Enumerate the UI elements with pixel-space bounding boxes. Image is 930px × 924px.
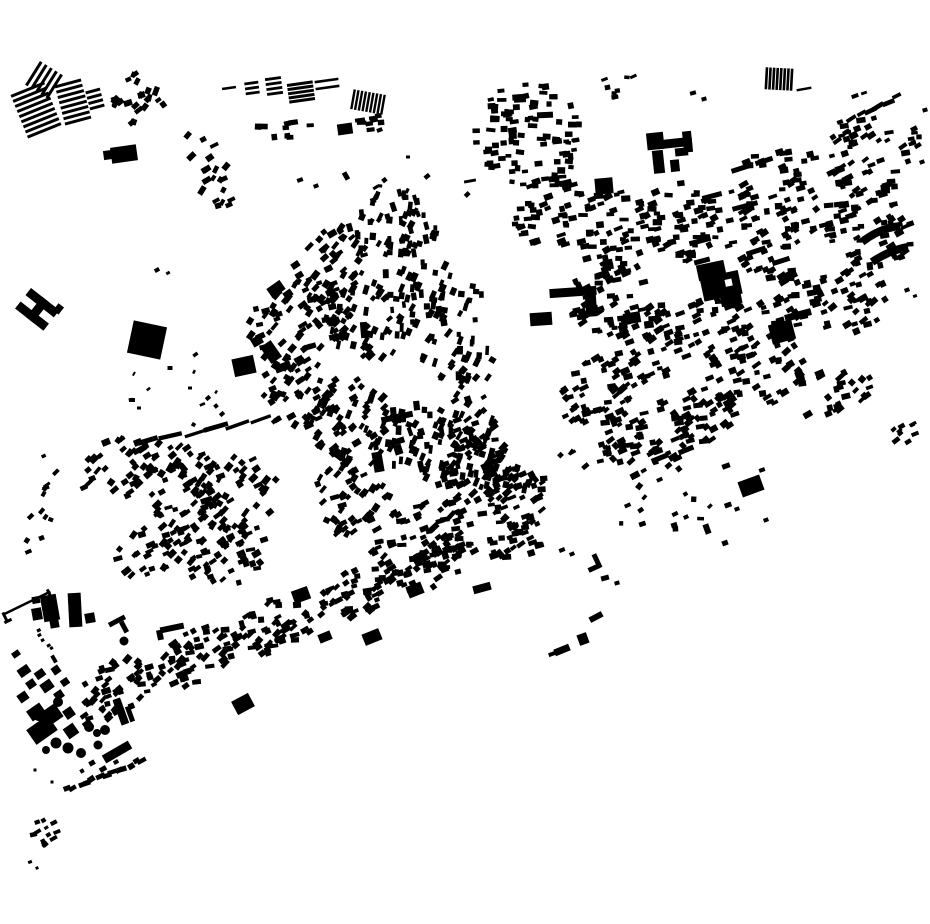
- map-background: [0, 0, 930, 924]
- city-figure-ground-map: [0, 0, 930, 924]
- figure-ground-map-page: [0, 0, 930, 924]
